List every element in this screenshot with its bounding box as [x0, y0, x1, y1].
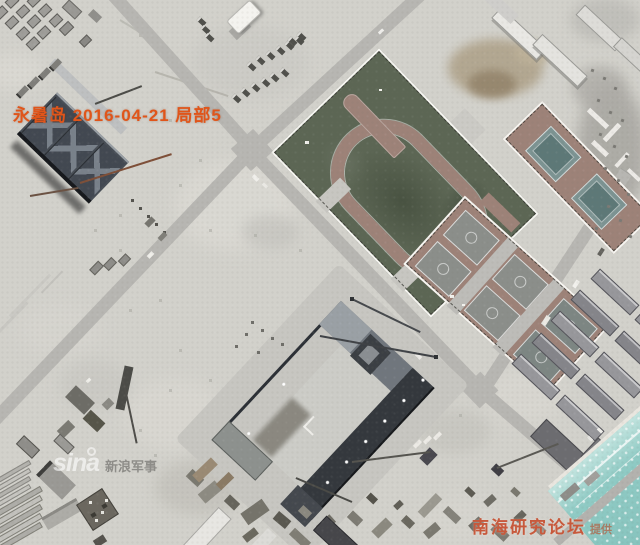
field-entrance-path	[316, 178, 352, 213]
sand-speck	[209, 229, 212, 232]
white-barracks	[613, 37, 640, 74]
field-dot	[379, 89, 382, 91]
rubble-speck	[624, 154, 628, 158]
sand-speck	[199, 159, 202, 162]
field-dot	[450, 295, 454, 298]
rubble-speck	[590, 68, 594, 72]
debris-speck	[235, 345, 238, 348]
field-dot	[462, 304, 465, 306]
shed	[62, 0, 83, 19]
construction-clutter	[393, 500, 404, 511]
debris	[93, 534, 107, 545]
barracks-hut	[4, 16, 19, 31]
sand-speck	[159, 299, 162, 302]
rubble-speck	[628, 234, 632, 238]
sand-patch	[242, 215, 298, 249]
debris-speck	[261, 329, 264, 332]
court-walkway	[447, 237, 519, 315]
sand-speck	[179, 349, 182, 352]
pad-speck	[101, 511, 104, 514]
rubble-speck	[613, 86, 617, 90]
construction-clutter	[347, 510, 363, 526]
sina-watermark: sina新浪军事	[53, 449, 157, 478]
debris-speck	[155, 223, 158, 226]
rubble-speck	[603, 166, 607, 170]
sand-speck	[179, 184, 182, 187]
sina-military-label: 新浪军事	[105, 459, 157, 474]
satellite-image: 永暑岛 2016-04-21 局部5 sina新浪军事 南海研究论坛提供	[0, 0, 640, 545]
barracks-hut	[26, 15, 41, 30]
vehicle	[597, 248, 605, 257]
shed	[117, 253, 130, 266]
barracks-hut	[78, 34, 91, 47]
rubble-speck	[612, 144, 616, 148]
pad-speck	[105, 499, 108, 502]
rubble-speck	[618, 218, 622, 222]
equipment	[83, 410, 106, 432]
barracks-hut	[27, 0, 42, 7]
construction-clutter	[510, 487, 521, 498]
construction-clutter	[371, 517, 392, 538]
sand-patch	[468, 70, 516, 98]
pad-speck	[95, 519, 98, 522]
sand-speck	[299, 249, 302, 252]
forum-name: 南海研究论坛	[472, 518, 586, 537]
debris-speck	[271, 337, 274, 340]
rubble-speck	[598, 132, 602, 136]
field-dot	[305, 141, 309, 144]
sand-speck	[254, 234, 257, 237]
sand-speck	[459, 414, 462, 417]
long-shed	[41, 498, 83, 530]
sina-eye-icon	[87, 447, 96, 456]
rubble-speck	[594, 226, 598, 230]
vehicle	[572, 280, 580, 289]
running-track-straight	[340, 91, 406, 159]
shed	[88, 9, 102, 23]
image-caption: 永暑岛 2016-04-21 局部5	[13, 101, 222, 126]
debris	[144, 216, 155, 227]
debris-speck	[245, 333, 248, 336]
debris-speck	[257, 351, 260, 354]
sand-speck	[119, 214, 122, 217]
sand-speck	[169, 389, 172, 392]
rubble-speck	[616, 178, 620, 182]
rubble-speck	[608, 110, 612, 114]
forum-suffix: 提供	[590, 524, 612, 536]
sand-speck	[209, 379, 212, 382]
sand-speck	[139, 429, 142, 432]
sand-speck	[129, 309, 132, 312]
rubble-speck	[626, 192, 630, 196]
construction-clutter	[366, 492, 378, 504]
debris-speck	[131, 199, 134, 202]
barracks-hut	[37, 3, 52, 18]
construction-clutter	[401, 515, 415, 529]
shed	[16, 435, 40, 459]
sand-speck	[119, 249, 122, 252]
rubble-speck	[602, 76, 606, 80]
barracks-hut	[15, 4, 30, 19]
rubble-speck	[620, 118, 624, 122]
barracks-hut	[26, 36, 41, 51]
shed	[103, 257, 117, 271]
sand-patch	[0, 54, 45, 90]
crane-cab	[434, 355, 438, 359]
rubble-speck	[606, 204, 610, 208]
debris-speck	[139, 207, 142, 210]
debris-speck	[251, 321, 254, 324]
dark-stock-pad	[76, 488, 119, 531]
debris-speck	[281, 343, 284, 346]
barracks-hut	[5, 0, 20, 8]
barracks-hut	[15, 26, 30, 41]
sand-speck	[94, 229, 97, 232]
pad-speck	[89, 501, 92, 504]
barracks-hut	[0, 5, 8, 20]
shed	[89, 261, 104, 276]
barracks-hut	[37, 25, 52, 40]
forum-watermark: 南海研究论坛提供	[472, 513, 612, 538]
crane-cab	[350, 297, 354, 301]
rubble-speck	[596, 98, 600, 102]
barracks-hut	[58, 20, 74, 36]
